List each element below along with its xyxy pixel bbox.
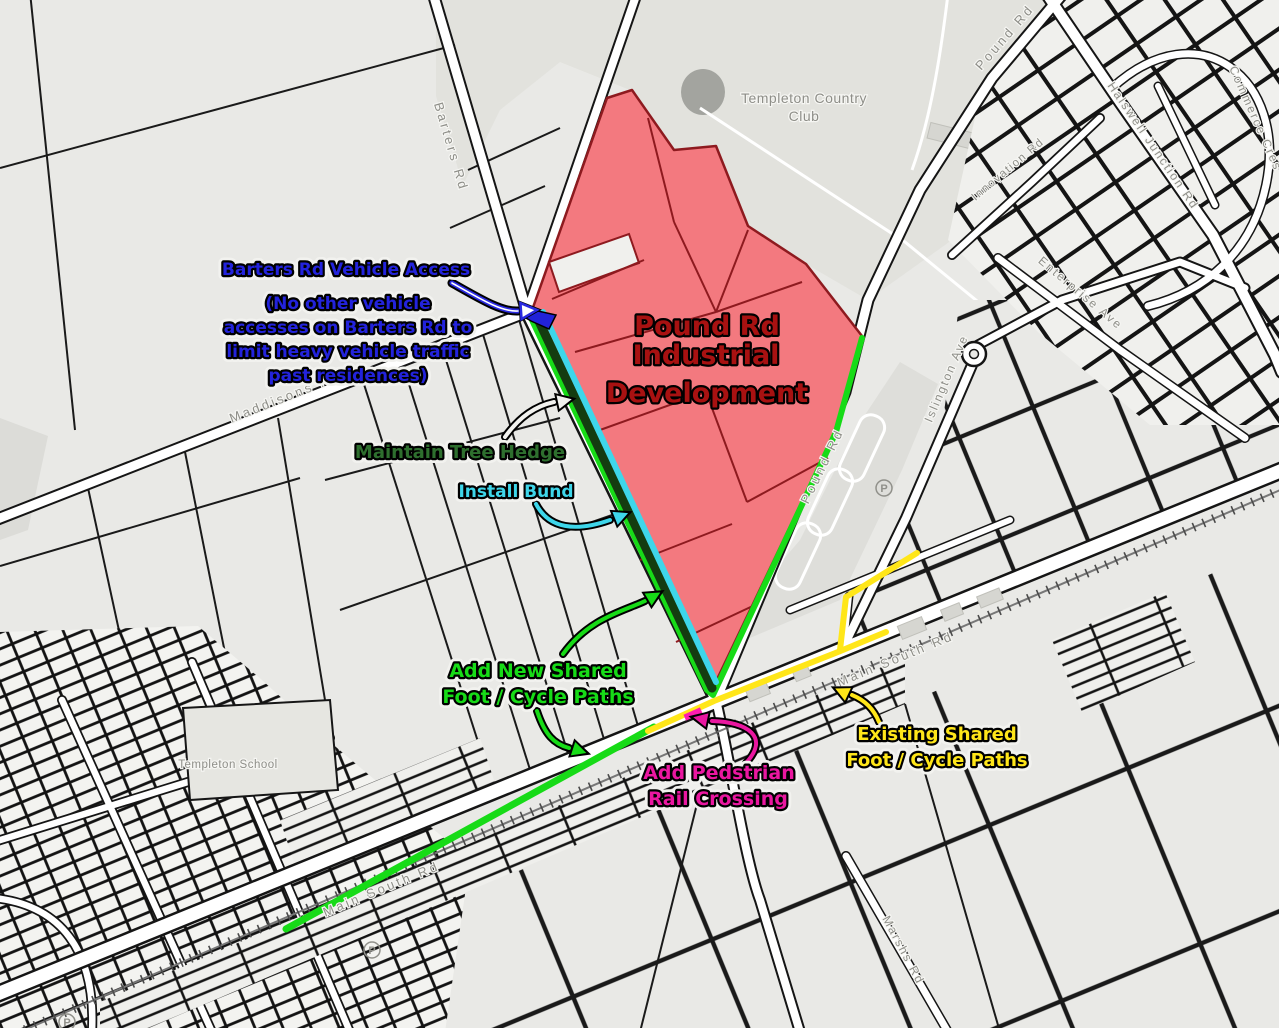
development-title-line: Pound Rd xyxy=(634,311,780,342)
access-note-line: past residences) xyxy=(269,366,428,386)
new-paths-label-line: Foot / Cycle Paths xyxy=(442,686,633,708)
access-note-line: limit heavy vehicle traffic xyxy=(226,342,469,362)
school-label: Templeton School xyxy=(178,759,277,771)
map-screenshot: Templeton Country Club Templeton School … xyxy=(0,0,1279,1028)
bund-label: Install Bund xyxy=(458,482,573,502)
access-note-line: accesses on Barters Rd to xyxy=(224,318,473,338)
parking-icon: P xyxy=(63,1017,70,1028)
access-note-line: (No other vehicle xyxy=(265,294,430,314)
country-club-label: Club xyxy=(789,108,820,124)
development-title-line: Development xyxy=(606,378,808,409)
new-paths-label-line: Add New Shared xyxy=(449,660,626,682)
crossing-label-line: Add Pedstrian xyxy=(643,762,795,784)
crossing-label-line: Rail Crossing xyxy=(648,788,788,810)
country-club-label: Templeton Country xyxy=(741,90,867,106)
hedge-label: Maintain Tree Hedge xyxy=(355,442,565,463)
parking-icon: P xyxy=(880,483,887,495)
parking-icon: P xyxy=(368,945,375,957)
existing-paths-label-line: Existing Shared xyxy=(857,724,1016,745)
school-block xyxy=(183,700,338,800)
existing-paths-label-line: Foot / Cycle Paths xyxy=(846,750,1027,771)
map-canvas[interactable]: Templeton Country Club Templeton School … xyxy=(0,0,1279,1028)
development-title-line: Industrial xyxy=(633,340,780,371)
pond xyxy=(681,69,725,115)
access-title: Barters Rd Vehicle Access xyxy=(222,260,470,280)
